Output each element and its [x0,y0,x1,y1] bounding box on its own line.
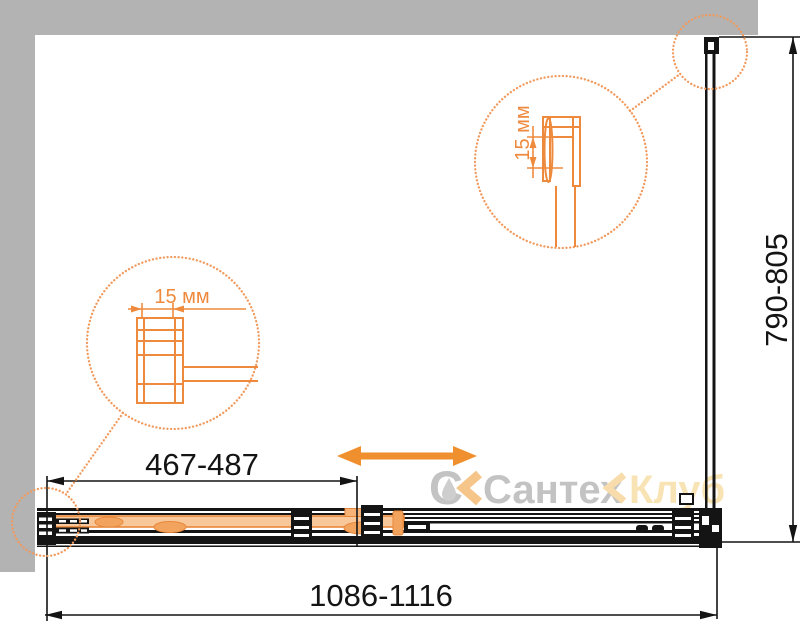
watermark-chevron-icon [463,474,479,502]
double-headed-arrow-icon [337,446,477,466]
arrowhead-right-icon [700,611,717,619]
detail-callout-left: 15 мм [12,257,259,556]
arrowhead-up-icon [789,37,797,54]
watermark-club: Клуб [629,468,725,512]
track-rail-line [37,546,720,548]
dimension-label: 790-805 [759,233,794,347]
watermark-brand: Сантех [483,468,622,512]
side-panel-bracket-slot [708,42,714,50]
dimension-label: 467-487 [145,447,259,482]
side-panel [704,37,719,508]
corner-bracket-tab [680,494,693,504]
shower-enclosure-technical-drawing: С Сантех Клуб [0,0,800,623]
fixed-panel-roller [652,525,664,532]
dimension-side-depth: 790-805 [719,37,800,542]
wall-top [0,0,758,35]
arrowhead-right-icon [340,477,357,485]
dimension-label: 1086-1116 [309,578,453,613]
callout-leader-line [630,74,680,111]
detail-label: 15 мм [154,286,209,308]
fixed-panel-roller [636,525,648,532]
corner-connector [699,508,722,548]
wall-left [0,0,35,572]
glass-clamp [291,509,312,543]
guide-block [404,521,430,533]
door-roller [154,522,186,533]
watermark: С Сантех Клуб [429,461,725,514]
magnifier-dotted-circle-icon [475,76,647,248]
arrowhead-down-icon [789,525,797,542]
technical-drawing-canvas: С Сантех Клуб [0,0,800,623]
arrowhead-left-icon [47,477,64,485]
door-end-cap [393,511,403,535]
callout-leader-line [66,413,123,494]
dimension-overall-width: 1086-1116 [45,548,717,619]
door-roller [95,517,123,527]
side-panel-glass-line [713,54,716,508]
wall-profile-magnified [137,318,258,403]
detail-label: 15 мм [512,105,534,160]
glass-clamp [361,505,383,540]
glass-clamp [672,509,694,543]
side-panel-glass-line [705,54,708,508]
